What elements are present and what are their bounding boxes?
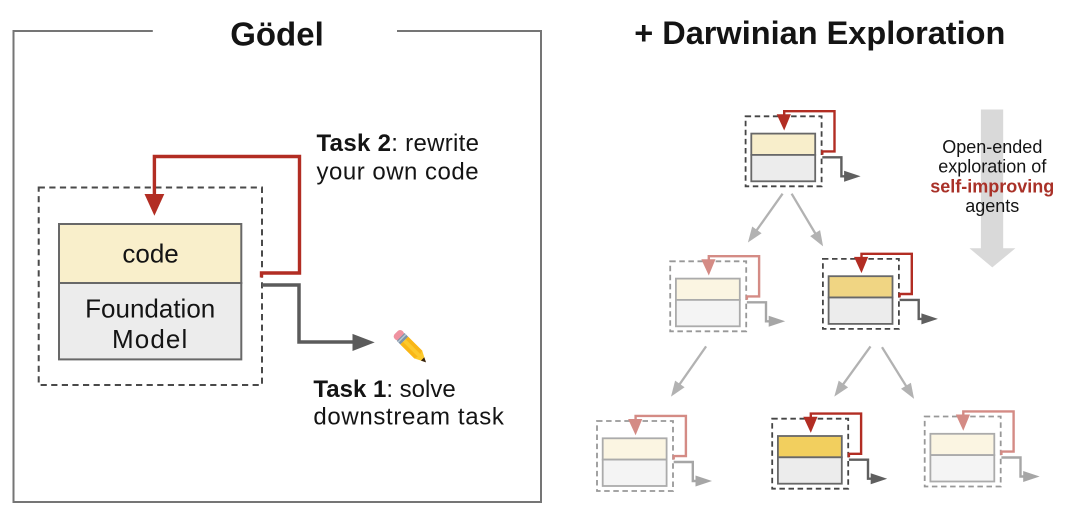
svg-text:your own code: your own code	[317, 158, 480, 185]
svg-text:Task 1: solve: Task 1: solve	[313, 376, 455, 403]
svg-text:downstream task: downstream task	[313, 404, 505, 431]
svg-text:self-improving: self-improving	[930, 177, 1054, 197]
svg-text:Open-ended: Open-ended	[942, 137, 1042, 157]
svg-text:Gödel: Gödel	[230, 16, 324, 53]
svg-text:exploration of: exploration of	[938, 157, 1047, 177]
svg-text:+ Darwinian Exploration: + Darwinian Exploration	[634, 15, 1005, 51]
svg-text:Foundation: Foundation	[85, 294, 215, 324]
svg-text:agents: agents	[965, 196, 1019, 216]
svg-text:Task 2: rewrite: Task 2: rewrite	[317, 130, 480, 157]
svg-text:Model: Model	[112, 324, 188, 354]
svg-text:code: code	[122, 238, 178, 268]
